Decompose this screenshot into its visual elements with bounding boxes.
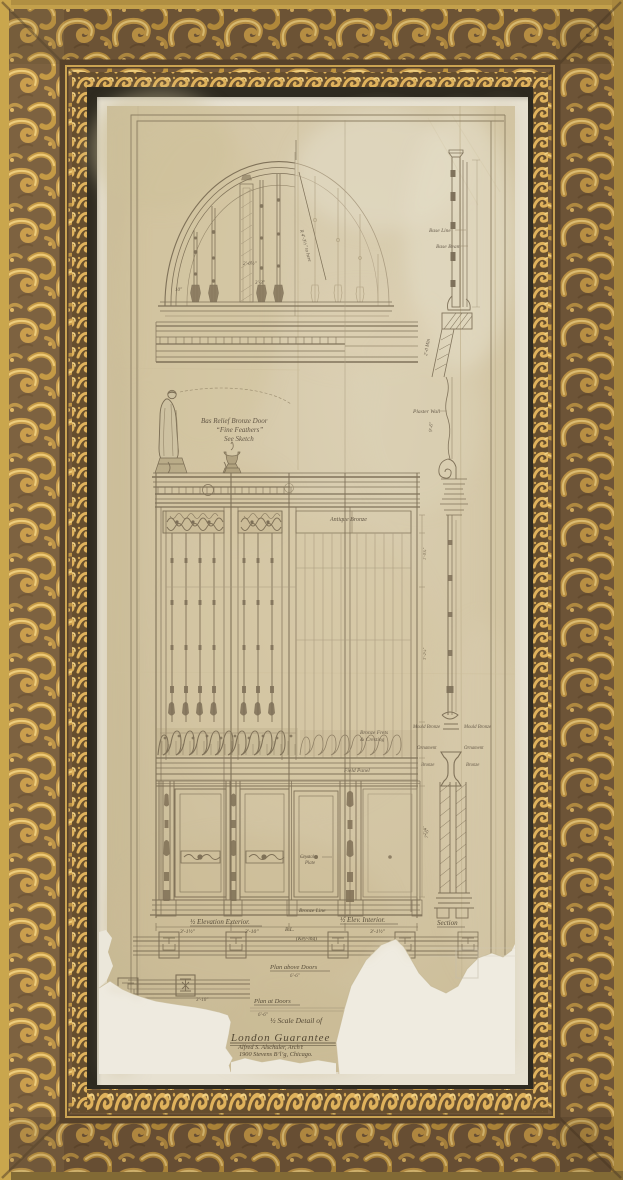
svg-text:Bronze Frets: Bronze Frets	[360, 730, 388, 736]
svg-text:10": 10"	[175, 288, 183, 293]
svg-text:½ Elev. Interior.: ½ Elev. Interior.	[340, 916, 385, 924]
svg-text:6'-6": 6'-6"	[290, 974, 301, 979]
svg-text:London Guarantee: London Guarantee	[230, 1032, 330, 1044]
svg-text:Plaster Wall: Plaster Wall	[412, 409, 441, 415]
svg-text:2'-0½": 2'-0½"	[243, 262, 257, 267]
svg-text:Mould Bronze: Mould Bronze	[412, 725, 441, 730]
svg-text:6'-6": 6'-6"	[258, 1013, 269, 1018]
svg-text:Bas Relief Bronze Door: Bas Relief Bronze Door	[201, 417, 268, 425]
svg-text:Crystal: Crystal	[300, 855, 315, 860]
svg-text:1900 Stevens B’l’g, Chicago.: 1900 Stevens B’l’g, Chicago.	[239, 1051, 313, 1058]
svg-text:3'-1½": 3'-1½"	[179, 928, 196, 935]
svg-text:B.L.: B.L.	[285, 927, 294, 933]
svg-text:See Sketch: See Sketch	[224, 435, 254, 443]
svg-text:Bronze Line: Bronze Line	[299, 908, 326, 914]
svg-text:½ Scale Detail of: ½ Scale Detail of	[270, 1016, 323, 1025]
svg-text:3'-3": 3'-3"	[255, 281, 266, 286]
svg-text:Ornament: Ornament	[417, 746, 437, 751]
svg-text:1'-0¾": 1'-0¾"	[422, 548, 427, 560]
svg-text:& Cresting: & Cresting	[360, 737, 385, 743]
svg-text:3'-10": 3'-10"	[196, 998, 209, 1003]
svg-text:3'-2¼": 3'-2¼"	[422, 648, 427, 660]
svg-text:Bronze: Bronze	[421, 763, 435, 768]
svg-text:9'-6": 9'-6"	[429, 421, 435, 432]
svg-text:Plan above Doors: Plan above Doors	[269, 964, 318, 971]
svg-text:Base Beam: Base Beam	[436, 244, 461, 250]
svg-text:Alfred S. Alschuler, Arch’t: Alfred S. Alschuler, Arch’t	[237, 1044, 303, 1051]
svg-text:½ Elevation Exterior.: ½ Elevation Exterior.	[190, 918, 250, 926]
svg-text:Plan at Doors: Plan at Doors	[253, 998, 291, 1005]
svg-text:Section: Section	[437, 919, 458, 927]
svg-text:Plate: Plate	[304, 861, 316, 866]
svg-text:Antique Bronze: Antique Bronze	[329, 517, 367, 523]
svg-text:Mould Bronze: Mould Bronze	[463, 725, 492, 730]
svg-text:Bronze: Bronze	[466, 763, 480, 768]
svg-text:“Fine Feathers”: “Fine Feathers”	[216, 426, 263, 434]
svg-text:Field Panel: Field Panel	[343, 768, 370, 774]
svg-text:2'-6": 2'-6"	[422, 826, 427, 835]
svg-text:3'-1½": 3'-1½"	[369, 928, 386, 935]
svg-text:Ornament: Ornament	[464, 746, 484, 751]
svg-text:Base Line: Base Line	[429, 228, 451, 234]
